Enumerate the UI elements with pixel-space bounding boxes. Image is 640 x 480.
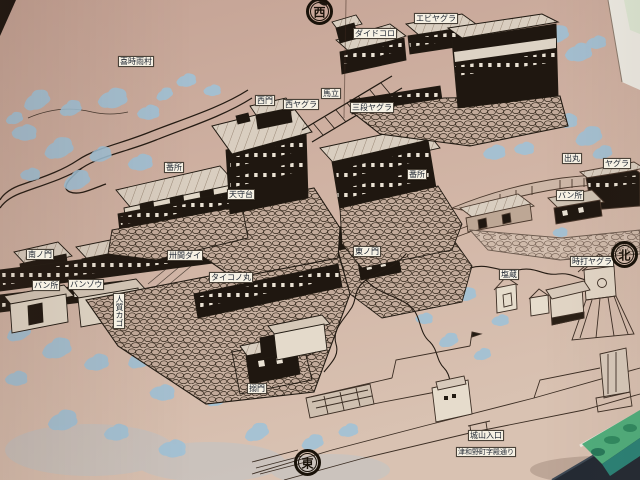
map-label-banzou: バンゾウ bbox=[68, 279, 104, 290]
map-label-minami-no-mon: 南ノ門 bbox=[26, 249, 54, 260]
map-label-kijigure-village: 喜時雨村 bbox=[118, 56, 154, 67]
castle-map-drawing bbox=[0, 0, 640, 480]
castle-map-mural-photo: 喜時雨村 西門 西ヤグラ 馬立 三段ヤグラ ダイドコロ エビヤグラ 番所 天守台… bbox=[0, 0, 640, 480]
map-label-bansho-south: バン所 bbox=[32, 280, 60, 291]
map-label-west-gate: 西門 bbox=[255, 95, 275, 106]
compass-east: 東 bbox=[294, 449, 321, 476]
map-label-sanjukken-dai: 卅間ダイ bbox=[167, 250, 203, 261]
map-label-umadate: 馬立 bbox=[321, 88, 341, 99]
map-label-hitojichi-kago: 人質カゴ bbox=[113, 293, 125, 329]
map-label-street-note: 津和野町字殿通り bbox=[456, 447, 516, 457]
compass-north-glyph: 北 bbox=[618, 247, 630, 264]
map-label-shiogura: 塩蔵 bbox=[499, 269, 519, 280]
map-label-bansho-west: 番所 bbox=[164, 162, 184, 173]
map-label-taiko-no-maru: タイコノ丸 bbox=[209, 272, 253, 283]
map-label-ebi-yagura: エビヤグラ bbox=[414, 13, 458, 24]
compass-north: 北 bbox=[611, 241, 638, 268]
map-label-tokiuchi-yagura: 時打ヤグラ bbox=[570, 256, 614, 267]
map-label-karame-mon: 搦門 bbox=[247, 383, 267, 394]
map-label-bansho-demaru: バン所 bbox=[556, 190, 584, 201]
photo-vignette bbox=[0, 0, 640, 480]
map-label-tenshudai: 天守台 bbox=[227, 189, 255, 200]
map-label-daidokoro: ダイドコロ bbox=[353, 28, 397, 39]
map-label-higashi-no-mon: 東ノ門 bbox=[353, 246, 381, 257]
map-label-sandan-yagura: 三段ヤグラ bbox=[350, 102, 394, 113]
map-label-shiroyama-entrance: 城山入口 bbox=[468, 430, 504, 441]
map-label-west-yagura: 西ヤグラ bbox=[283, 99, 319, 110]
map-label-demaru: 出丸 bbox=[562, 153, 582, 164]
map-label-yagura: ヤグラ bbox=[603, 158, 631, 169]
compass-east-glyph: 東 bbox=[301, 455, 313, 472]
map-label-bansho-center: 番所 bbox=[407, 169, 427, 180]
compass-west-glyph: 西 bbox=[313, 4, 325, 21]
